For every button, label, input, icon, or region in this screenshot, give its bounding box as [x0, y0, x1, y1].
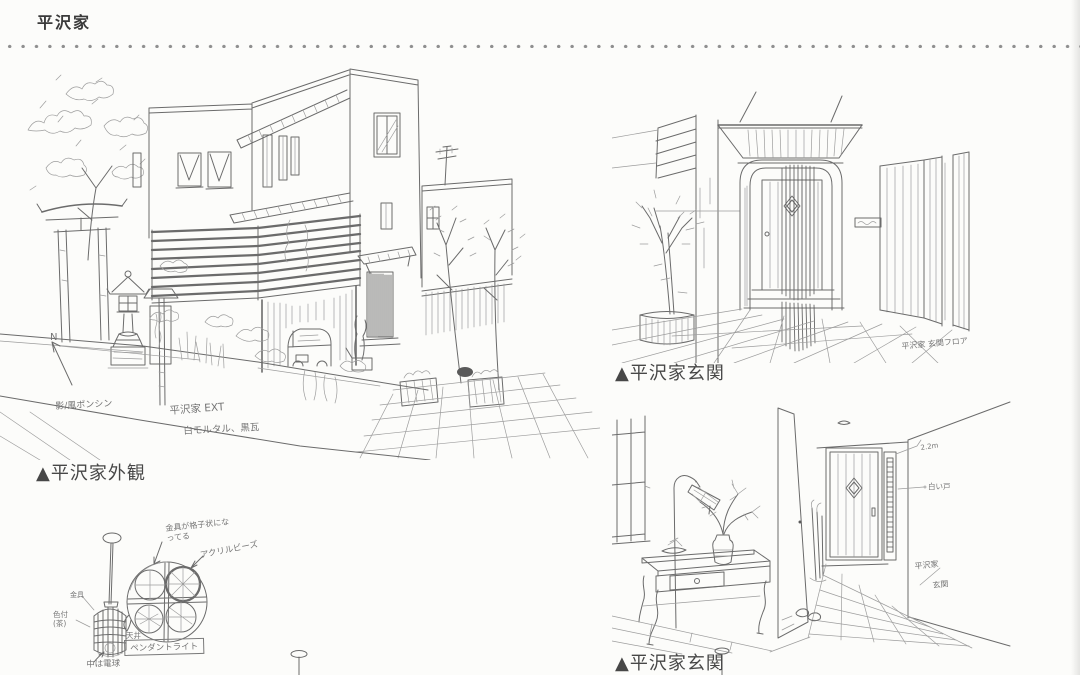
terrace-paving	[356, 373, 600, 458]
dotted-divider	[0, 43, 1080, 48]
door-steps	[744, 290, 844, 351]
page-title: 平沢家	[37, 9, 91, 33]
partition-wall	[778, 408, 808, 638]
cutoff-post-sketch-1	[284, 645, 314, 675]
dish	[662, 538, 686, 553]
caption-genkan: ▲平沢家玄関	[615, 649, 725, 675]
genkan-location-note-2: 玄関	[932, 578, 949, 591]
hanging-lamp	[94, 533, 126, 657]
umbrella-stand	[810, 500, 826, 582]
house-right-tower	[350, 69, 421, 278]
porch-cap-roof	[718, 92, 862, 163]
page-edge-shade	[1071, 0, 1080, 675]
scanned-artbook-page: 平沢家	[0, 0, 1080, 675]
tv-antenna	[436, 146, 458, 185]
caption-exterior: ▲平沢家外観	[36, 459, 146, 485]
garden-fence-right	[422, 279, 512, 335]
console-table	[639, 550, 770, 645]
house-center-block	[237, 70, 350, 187]
front-door	[762, 165, 822, 300]
door-frame	[740, 160, 842, 310]
sidelight-window	[884, 452, 896, 560]
pendant-color-note: 色付(茶)	[53, 610, 77, 628]
compass-arrow	[52, 342, 72, 385]
genkan-door-note: 白い戸	[928, 481, 951, 492]
right-wall	[880, 152, 969, 331]
torii-gate	[37, 199, 127, 342]
pendant-label: ペンダントライト	[124, 638, 204, 656]
pendant-bulb-note: 中は電球	[86, 657, 120, 670]
planter-tree	[632, 190, 704, 314]
pendant-fitting-note: 金具	[70, 590, 84, 600]
nameplate	[855, 218, 881, 227]
entry-door-awning	[358, 247, 416, 273]
tree-left	[28, 75, 148, 260]
planter-pot	[640, 312, 694, 346]
front-door	[822, 448, 888, 566]
caption-gate: ▲平沢家玄関	[615, 359, 725, 385]
left-window	[612, 416, 650, 544]
entry-door	[346, 272, 400, 370]
balcony-slat-fence	[152, 214, 360, 303]
neighbor-house	[422, 146, 512, 287]
house-left-block	[133, 104, 252, 238]
tile-floor	[808, 564, 972, 648]
gate-entrance-drawing	[612, 68, 1012, 363]
stone-wall	[0, 334, 430, 460]
genkan-interior-drawing	[612, 390, 1012, 655]
compass-label: N	[50, 332, 57, 343]
stone-lantern	[107, 271, 149, 368]
car	[288, 329, 331, 366]
